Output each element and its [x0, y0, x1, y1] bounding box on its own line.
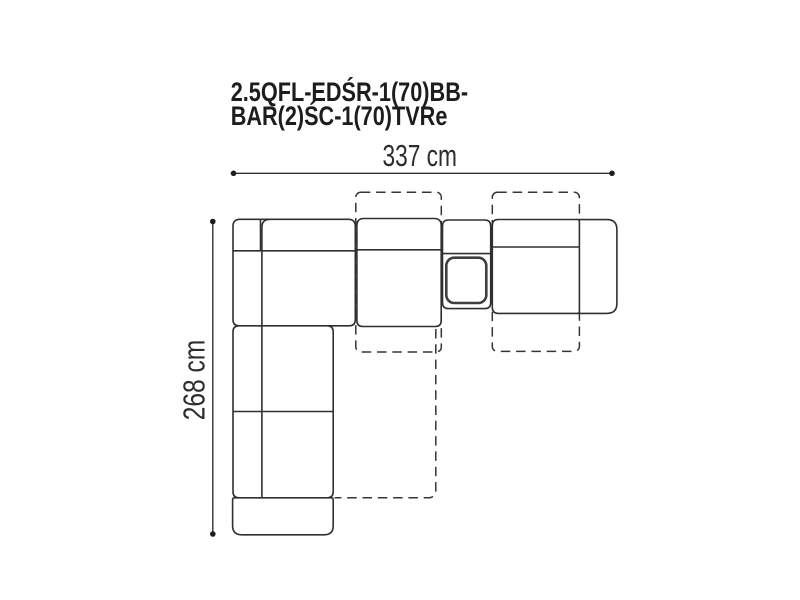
svg-text:BAR(2)ŚC-1(70)TVRe: BAR(2)ŚC-1(70)TVRe	[231, 101, 448, 131]
svg-text:268 cm: 268 cm	[178, 340, 212, 421]
svg-text:337 cm: 337 cm	[382, 138, 457, 173]
